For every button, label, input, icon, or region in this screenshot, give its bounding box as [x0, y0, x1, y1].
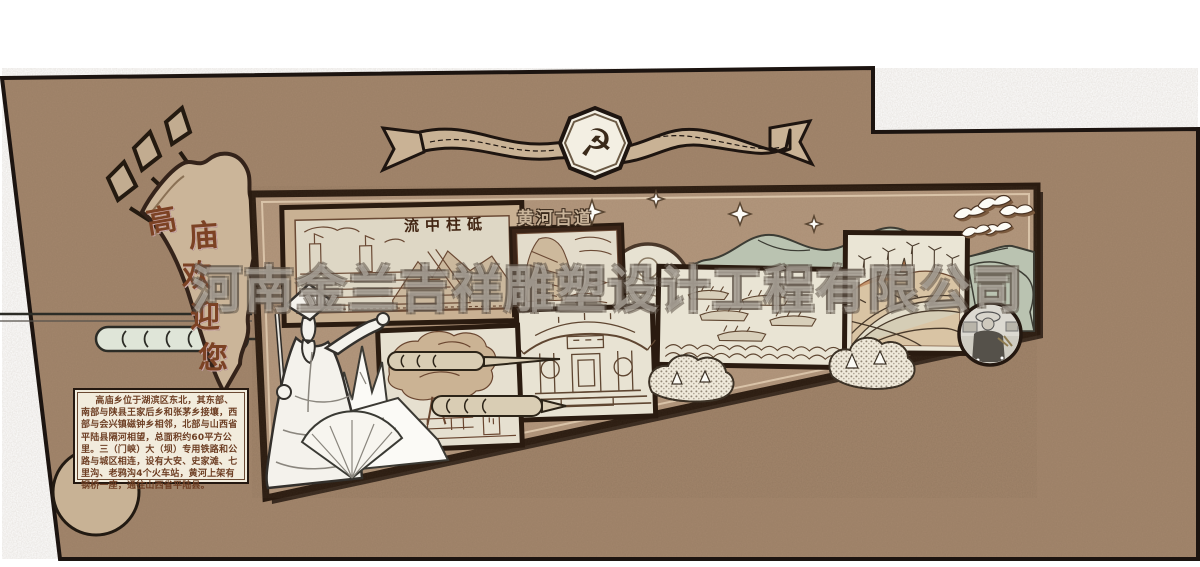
flag-char-ying: 迎: [190, 292, 220, 336]
panel-plank-road: [510, 224, 625, 316]
intro-plaque: 高庙乡位于湖滨区东北，其东部、南部与陕县王家后乡和张茅乡接壤，西部与会兴镇磁钟乡…: [73, 388, 249, 484]
panel-plank-road-title: 黄河古道: [517, 204, 593, 229]
panel-farmer-photo: [959, 303, 1021, 366]
head-and-beard: [301, 318, 315, 363]
cultural-wall-design: ☭ 高 庙 欢 迎 您 流中柱砥 黄河古道 高庙乡位于湖滨区东北，其东部、南部与…: [0, 0, 1200, 567]
intro-plaque-text: 高庙乡位于湖滨区东北，其东部、南部与陕县王家后乡和张茅乡接壤，西部与会兴镇磁钟乡…: [81, 395, 241, 493]
flag-char-miao: 庙: [187, 210, 220, 256]
gripping-hand: [277, 385, 291, 399]
panel-dragon-boats: [657, 266, 849, 367]
hammer-and-sickle-icon: ☭: [566, 113, 626, 173]
hand: [377, 313, 389, 325]
panel-terraced-fields: [844, 232, 967, 353]
flag-char-nin: 您: [198, 333, 228, 377]
panel-dam-title: 流中柱砥: [404, 213, 489, 236]
flag-char-huan: 欢: [182, 251, 212, 295]
